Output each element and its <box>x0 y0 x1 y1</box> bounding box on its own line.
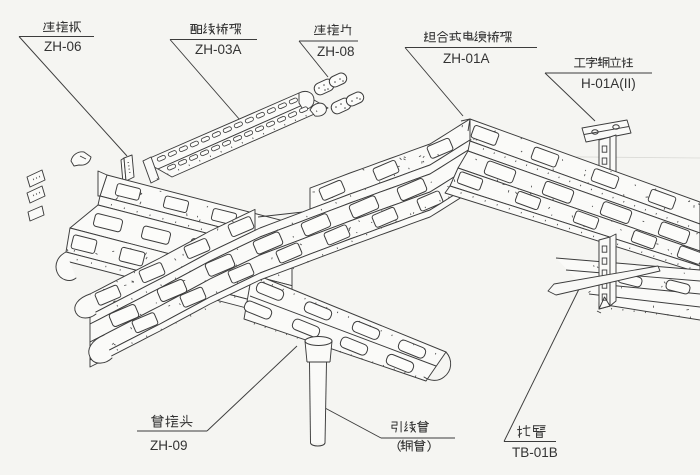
svg-text:ZH-01A: ZH-01A <box>443 51 490 66</box>
svg-text:H-01A(II): H-01A(II) <box>581 76 636 91</box>
svg-text:ZH-03A: ZH-03A <box>195 42 242 57</box>
svg-text:TB-01B: TB-01B <box>512 445 558 460</box>
svg-text:ZH-08: ZH-08 <box>317 44 355 59</box>
svg-text:ZH-06: ZH-06 <box>44 39 82 54</box>
svg-text:ZH-09: ZH-09 <box>150 438 188 453</box>
